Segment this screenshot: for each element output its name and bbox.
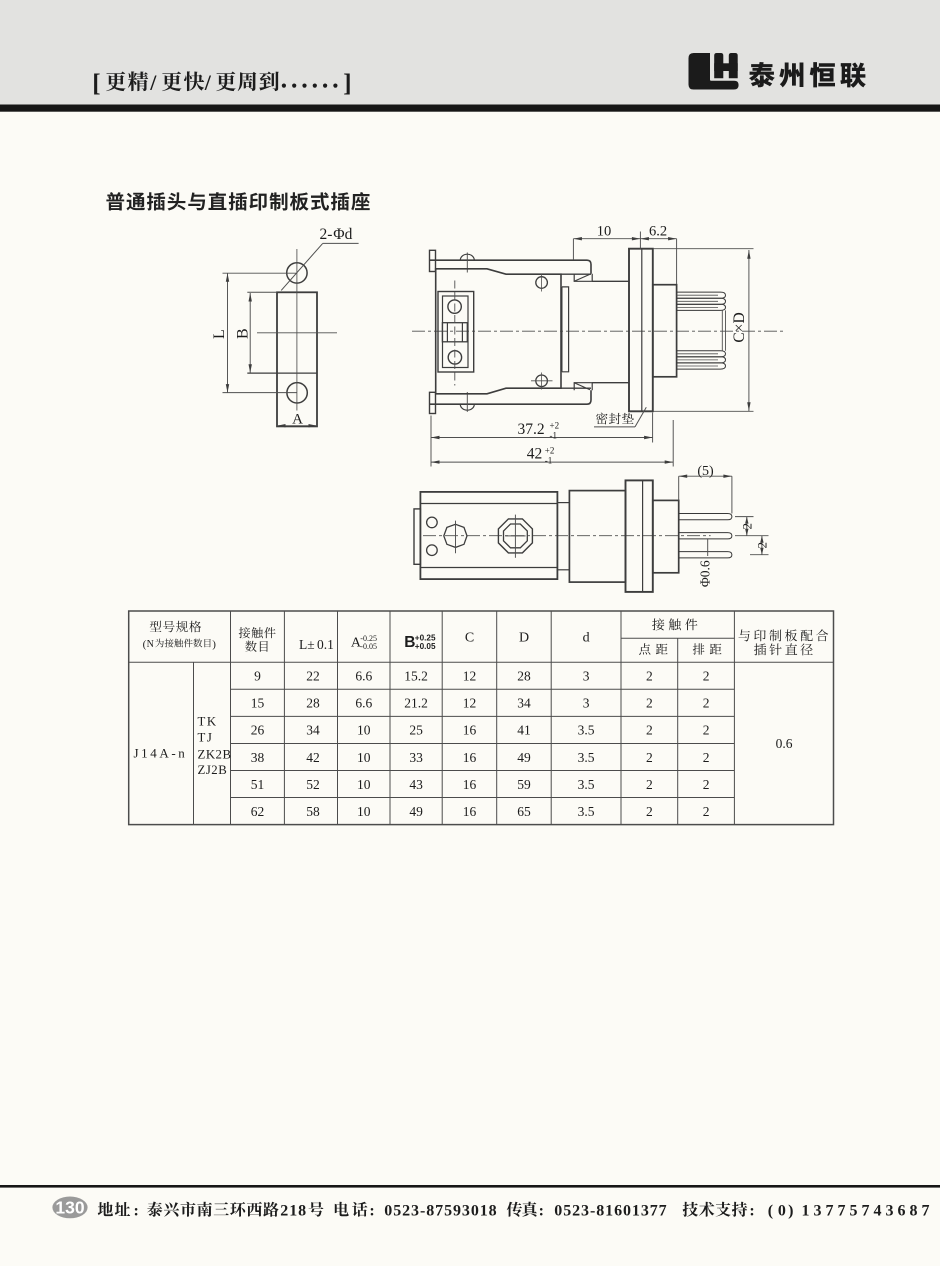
svg-text:+0.05: +0.05: [415, 642, 436, 651]
svg-text:16: 16: [463, 723, 477, 738]
svg-text:218: 218: [280, 1202, 307, 1219]
svg-text:2: 2: [646, 804, 653, 819]
svg-text:2: 2: [703, 669, 710, 684]
svg-text:0523-87593018: 0523-87593018: [384, 1202, 497, 1219]
svg-text:13775743687: 13775743687: [802, 1202, 934, 1219]
svg-text:C: C: [465, 631, 474, 646]
svg-text:6.6: 6.6: [355, 696, 372, 711]
svg-text:3.5: 3.5: [578, 750, 595, 765]
svg-text:3.5: 3.5: [578, 777, 595, 792]
svg-text:16: 16: [463, 777, 477, 792]
svg-text:A: A: [292, 412, 303, 428]
svg-text:10: 10: [357, 750, 371, 765]
svg-text:C×D: C×D: [731, 312, 748, 342]
svg-text:26: 26: [251, 723, 265, 738]
svg-text:65: 65: [517, 804, 531, 819]
svg-text:59: 59: [517, 777, 531, 792]
svg-text:3.5: 3.5: [578, 804, 595, 819]
svg-text:D: D: [519, 631, 529, 646]
svg-text:37.2: 37.2: [518, 421, 545, 438]
svg-text:42: 42: [306, 750, 320, 765]
svg-text:-0.05: -0.05: [360, 642, 377, 651]
svg-text:43: 43: [409, 777, 423, 792]
svg-text:/: /: [149, 70, 157, 95]
svg-text:49: 49: [517, 750, 531, 765]
svg-text:12: 12: [463, 696, 477, 711]
svg-text:TK: TK: [198, 715, 218, 729]
svg-text::: :: [539, 1202, 544, 1219]
svg-text:10: 10: [357, 777, 371, 792]
svg-text:12: 12: [463, 669, 477, 684]
svg-text:10: 10: [597, 223, 612, 239]
svg-text:+2: +2: [545, 445, 555, 455]
svg-text:): ): [212, 638, 216, 650]
svg-text:6.2: 6.2: [649, 223, 667, 239]
svg-text:L: L: [211, 329, 228, 339]
svg-text:2: 2: [703, 723, 710, 738]
svg-text:TJ: TJ: [198, 731, 214, 745]
svg-text:34: 34: [517, 696, 531, 711]
svg-text:2: 2: [646, 750, 653, 765]
svg-text:25: 25: [409, 723, 423, 738]
svg-text:3.5: 3.5: [578, 723, 595, 738]
svg-text:3: 3: [583, 696, 590, 711]
svg-text:15.2: 15.2: [404, 669, 428, 684]
svg-text:3: 3: [583, 669, 590, 684]
svg-text:10: 10: [357, 723, 371, 738]
svg-text:N: N: [147, 639, 154, 650]
svg-text:42: 42: [527, 446, 543, 463]
svg-text:16: 16: [463, 750, 477, 765]
svg-text:51: 51: [251, 777, 265, 792]
svg-text:0: 0: [778, 1202, 786, 1219]
svg-text:58: 58: [306, 804, 320, 819]
svg-text:2: 2: [739, 523, 754, 530]
svg-text::: :: [134, 1202, 139, 1219]
svg-text:L: L: [299, 637, 307, 652]
svg-text:16: 16: [463, 804, 477, 819]
svg-text:(5): (5): [697, 464, 714, 479]
svg-text:B: B: [235, 328, 252, 339]
svg-text:±: ±: [307, 637, 314, 652]
svg-text:Φ0.6: Φ0.6: [698, 560, 713, 587]
svg-text:22: 22: [306, 669, 320, 684]
svg-text::: :: [749, 1202, 754, 1219]
svg-text:52: 52: [306, 777, 320, 792]
svg-text:2: 2: [646, 777, 653, 792]
svg-text:[: [: [92, 70, 100, 97]
svg-text:0523-81601377: 0523-81601377: [554, 1202, 667, 1219]
svg-text:]: ]: [343, 70, 351, 97]
svg-text:28: 28: [517, 669, 531, 684]
svg-text:-1: -1: [545, 455, 553, 465]
svg-text:130: 130: [55, 1198, 84, 1218]
svg-text:10: 10: [357, 804, 371, 819]
svg-text:d: d: [583, 631, 590, 646]
svg-text:2: 2: [646, 723, 653, 738]
svg-text:2-: 2-: [320, 226, 333, 243]
svg-text:B: B: [404, 634, 415, 651]
svg-text::: :: [369, 1202, 374, 1219]
svg-text:2: 2: [703, 696, 710, 711]
svg-text:41: 41: [517, 723, 531, 738]
svg-text:62: 62: [251, 804, 265, 819]
svg-text:J14A-n: J14A-n: [134, 746, 188, 761]
svg-text:38: 38: [251, 750, 265, 765]
svg-text:15: 15: [251, 696, 265, 711]
svg-text:2: 2: [754, 542, 769, 549]
svg-text:ZK2B: ZK2B: [198, 747, 232, 761]
svg-text:ZJ2B: ZJ2B: [198, 763, 228, 777]
svg-text:2: 2: [703, 804, 710, 819]
svg-text:): ): [788, 1202, 793, 1219]
svg-text:34: 34: [306, 723, 320, 738]
svg-text:2: 2: [703, 750, 710, 765]
svg-text:0.1: 0.1: [317, 637, 334, 652]
svg-text:-1: -1: [550, 431, 558, 441]
svg-text:9: 9: [254, 669, 261, 684]
svg-text:2: 2: [703, 777, 710, 792]
svg-text:Φd: Φd: [333, 226, 352, 243]
svg-text:2: 2: [646, 696, 653, 711]
svg-text:/: /: [204, 70, 212, 95]
svg-text:0.6: 0.6: [776, 736, 793, 751]
svg-text:+2: +2: [550, 421, 560, 431]
svg-text:(: (: [768, 1202, 773, 1219]
svg-text:2: 2: [646, 669, 653, 684]
svg-text:28: 28: [306, 696, 320, 711]
svg-text:33: 33: [409, 750, 423, 765]
svg-text:49: 49: [409, 804, 423, 819]
svg-text:21.2: 21.2: [404, 696, 428, 711]
svg-text:6.6: 6.6: [355, 669, 372, 684]
